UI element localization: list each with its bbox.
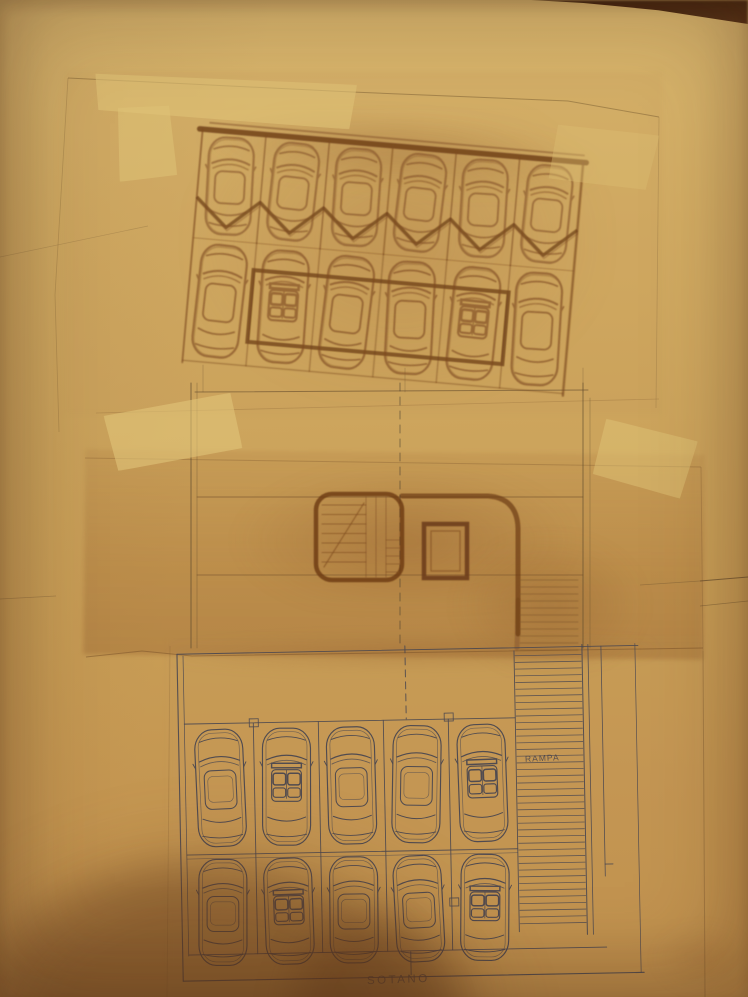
sheet-edge [656, 117, 659, 408]
drive-aisle-fade [517, 600, 518, 648]
seat [475, 311, 488, 323]
stair-diagonal [324, 503, 364, 567]
car-roof [520, 311, 553, 350]
stall-divider [257, 135, 267, 244]
ramp-hatch-line [517, 748, 583, 749]
car-roof [202, 283, 236, 323]
seat [270, 293, 283, 305]
car-windshield-2 [340, 174, 375, 181]
sheet-edge [55, 78, 68, 432]
car-bumper [398, 734, 436, 738]
stall-divider [447, 151, 456, 260]
sheet-edge [700, 577, 748, 581]
car-body [190, 243, 248, 359]
sheet-edge [86, 648, 703, 657]
seat-rear [270, 307, 283, 317]
stair-core-enclosure [316, 494, 402, 580]
car-windshield-2 [393, 292, 429, 298]
trunk-line [195, 344, 233, 351]
car-roof [467, 193, 499, 227]
ramp-hatch-line [516, 681, 582, 682]
ramp-hatch-line [516, 695, 582, 696]
car-body-rough [206, 139, 255, 235]
car-bumper [280, 150, 315, 157]
plan-border [601, 646, 605, 876]
car-windshield [397, 752, 437, 757]
sheet-edge [700, 601, 748, 606]
car-bumper [331, 735, 369, 740]
rear-window [390, 346, 426, 352]
car-bumper [407, 161, 442, 169]
car-body [458, 159, 509, 259]
sketch-car [328, 147, 385, 247]
ramp-hatch-line [517, 742, 583, 743]
car-bumper [394, 270, 430, 275]
trunk-line [449, 366, 487, 372]
stair-elevator-core [316, 494, 518, 648]
sheet-edge [0, 226, 148, 257]
photographer-shadow-extension [238, 856, 523, 997]
column-grid-lines [191, 365, 590, 648]
ramp-hatch-line [516, 708, 582, 709]
car-roof [394, 300, 426, 338]
sheet-edge [701, 467, 703, 651]
car-bumper [468, 167, 503, 173]
ramp-hatch-line [515, 668, 581, 669]
sketch-car [254, 249, 313, 364]
masking-tape-top-left-vertical [114, 104, 177, 182]
trunk-line [322, 355, 360, 362]
car-windshield-2 [213, 163, 248, 169]
trunk-line [515, 373, 553, 378]
stall-divider [436, 260, 447, 383]
car-roof [214, 171, 245, 205]
sketch-car [188, 243, 251, 360]
stall-divider [383, 146, 392, 255]
seat [461, 309, 474, 321]
car-bumper [207, 252, 243, 260]
sketch-car [389, 152, 450, 254]
rear-window [452, 351, 488, 359]
car-windshield [461, 751, 501, 757]
ramp-hatch-line [516, 715, 582, 716]
sketch-car [455, 158, 511, 258]
car-bumper [267, 737, 305, 741]
car-windshield-2 [531, 190, 566, 198]
rear-window [263, 335, 299, 342]
ramp-hatch-line [515, 654, 581, 655]
car-windshield-2 [467, 186, 502, 193]
car-bumper [342, 156, 377, 162]
car-body [205, 137, 255, 236]
plan-border [184, 718, 515, 724]
elevator-shaft-inner [431, 531, 460, 571]
car-bumper [199, 737, 237, 742]
sheet-edge [703, 651, 705, 997]
car-roof [276, 176, 309, 211]
car-body-rough [512, 274, 564, 386]
seat-rear [283, 308, 296, 318]
trunk-line [388, 362, 426, 366]
car-roof [403, 187, 436, 222]
stall-divider [510, 157, 520, 266]
center-dashed-line [405, 646, 406, 719]
trunk-line [335, 233, 372, 238]
seat [284, 294, 297, 306]
trunk-line [261, 350, 299, 355]
car-body-rough [459, 161, 509, 258]
ramp-hatch-line [515, 675, 581, 676]
car-roof [340, 182, 372, 216]
sketch-car [202, 136, 257, 235]
ramp-hatch-line [516, 701, 582, 702]
ramp-hatch-line [515, 661, 581, 662]
car-roof [530, 198, 563, 233]
seat-rear [460, 323, 473, 333]
ramp-hatch-line [516, 688, 582, 689]
sheet-edge [640, 581, 700, 585]
stall-divider [320, 140, 329, 249]
seat-rear [473, 325, 486, 335]
car-bumper [521, 280, 557, 286]
pencil-ramp-hatch [520, 580, 578, 650]
car-bumper [268, 258, 304, 264]
rear-window [517, 357, 553, 363]
car-roof [329, 294, 364, 334]
sketch-car [263, 141, 324, 243]
ramp-hatch-line [517, 735, 583, 736]
ramp-hatch-line [516, 728, 582, 729]
photo-of-drawing: RAMPA SOTANO [0, 0, 748, 997]
plan-border [635, 643, 641, 972]
car-bumper [334, 263, 370, 271]
car-windshield-2 [520, 303, 556, 310]
sheet-edge [0, 596, 56, 599]
car-body-rough [332, 149, 382, 246]
car-bumper [460, 274, 496, 281]
ramp-hatch-line [516, 721, 582, 722]
upper-sketch-parking [179, 122, 587, 396]
rear-window [325, 339, 361, 347]
rear-window [198, 328, 234, 336]
sketch-car [508, 272, 566, 387]
car-bumper [214, 145, 249, 150]
car-bumper [462, 732, 500, 737]
